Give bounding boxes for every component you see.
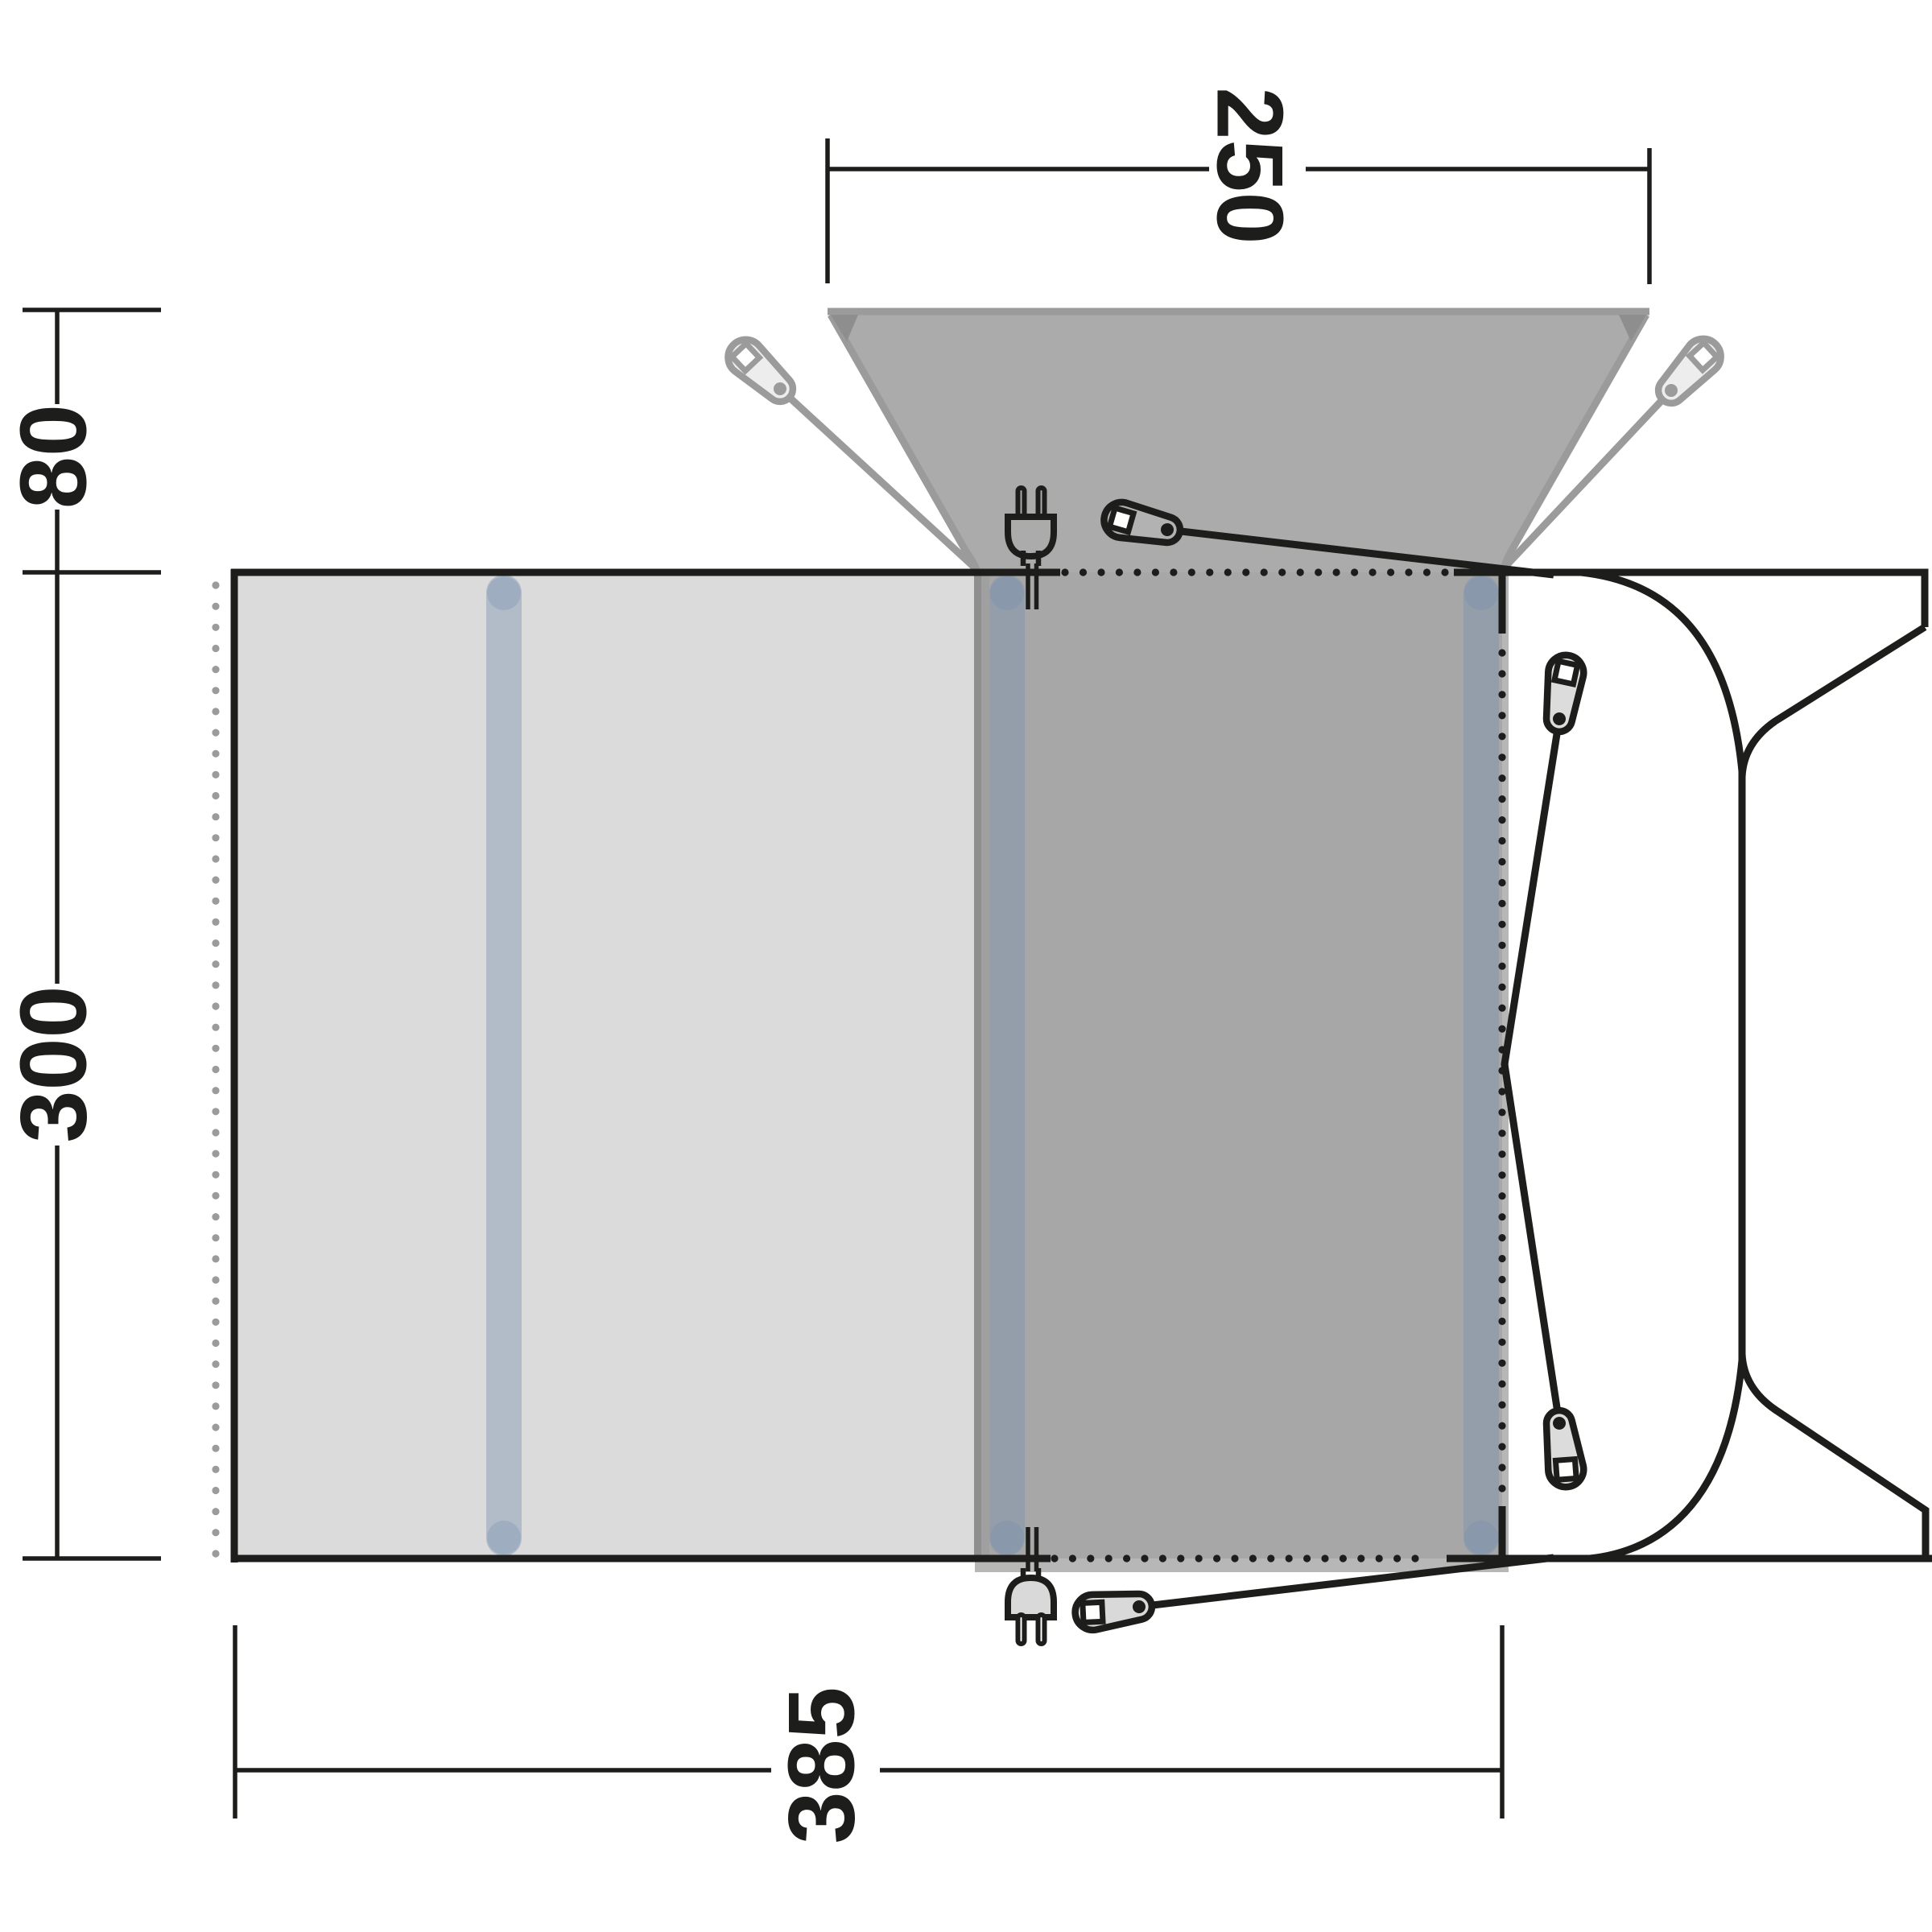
svg-text:385: 385 [769,1686,874,1843]
svg-text:250: 250 [1198,87,1303,244]
svg-text:300: 300 [1,985,106,1142]
svg-text:80: 80 [1,404,106,509]
